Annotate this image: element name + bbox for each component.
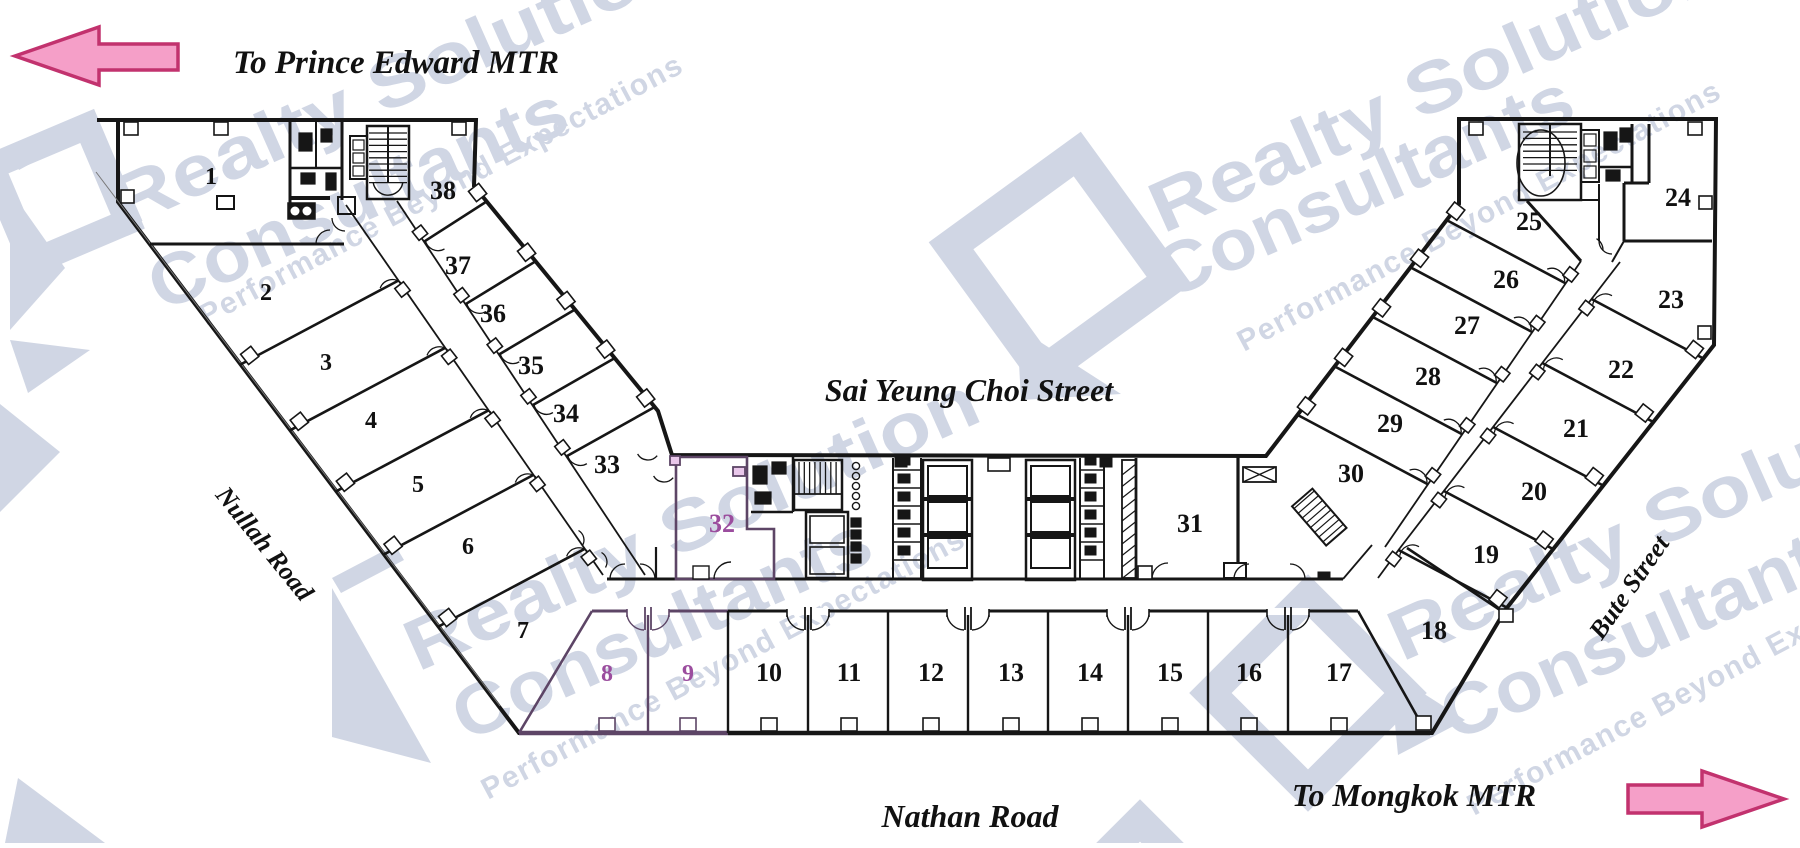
svg-text:38: 38 [430,176,456,205]
svg-text:15: 15 [1157,658,1183,687]
svg-text:33: 33 [594,450,620,479]
svg-text:8: 8 [601,661,613,687]
svg-text:16: 16 [1236,658,1262,687]
svg-text:7: 7 [517,618,529,644]
svg-text:To Mongkok MTR: To Mongkok MTR [1292,777,1536,813]
svg-text:12: 12 [918,658,944,687]
svg-text:14: 14 [1077,658,1103,687]
svg-text:27: 27 [1454,311,1480,340]
svg-text:18: 18 [1421,616,1447,645]
svg-text:34: 34 [553,399,579,428]
svg-text:32: 32 [709,509,735,538]
svg-text:Sai Yeung Choi Street: Sai Yeung Choi Street [825,372,1114,408]
svg-text:23: 23 [1658,285,1684,314]
svg-text:30: 30 [1338,459,1364,488]
svg-text:3: 3 [320,350,332,376]
svg-text:22: 22 [1608,355,1634,384]
svg-text:20: 20 [1521,477,1547,506]
svg-text:26: 26 [1493,265,1519,294]
svg-text:19: 19 [1473,540,1499,569]
svg-text:31: 31 [1177,509,1203,538]
svg-text:10: 10 [756,658,782,687]
svg-text:11: 11 [837,658,862,687]
svg-text:9: 9 [682,661,694,687]
svg-text:Nathan Road: Nathan Road [881,798,1060,834]
svg-text:To Prince Edward MTR: To Prince Edward MTR [233,45,559,81]
svg-text:29: 29 [1377,409,1403,438]
svg-text:13: 13 [998,658,1024,687]
svg-text:4: 4 [365,408,377,434]
svg-text:36: 36 [480,299,506,328]
svg-text:6: 6 [462,534,474,560]
svg-text:1: 1 [205,164,217,190]
svg-text:28: 28 [1415,362,1441,391]
svg-text:35: 35 [518,351,544,380]
svg-text:21: 21 [1563,414,1589,443]
svg-text:5: 5 [412,472,424,498]
svg-text:24: 24 [1665,183,1691,212]
svg-text:2: 2 [260,280,272,306]
svg-text:37: 37 [445,251,471,280]
svg-text:17: 17 [1326,658,1352,687]
